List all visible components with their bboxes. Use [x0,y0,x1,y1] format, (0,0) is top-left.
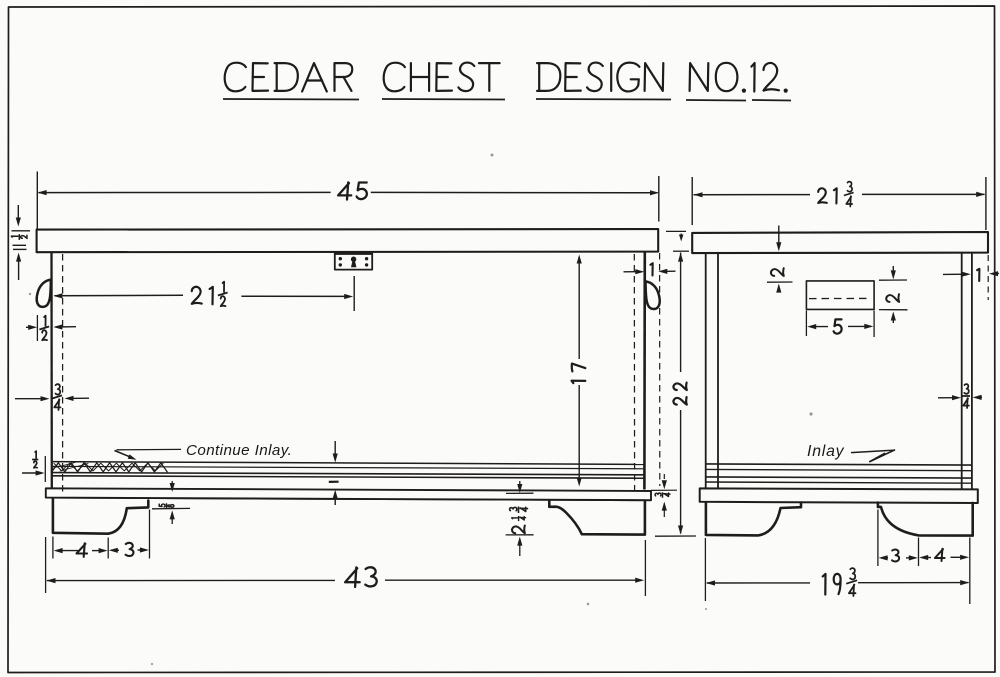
svg-text:Continue Inlay.: Continue Inlay. [186,442,292,459]
svg-text:Inlay: Inlay [807,443,845,460]
